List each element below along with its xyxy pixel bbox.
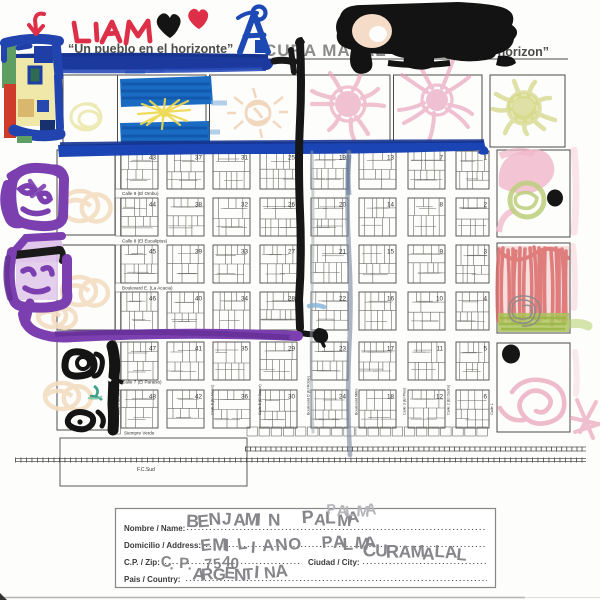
svg-text:L: L bbox=[342, 534, 354, 554]
svg-text:32: 32 bbox=[241, 202, 249, 209]
svg-text:37: 37 bbox=[195, 155, 203, 162]
svg-text:Calle 1: Calle 1 bbox=[490, 403, 494, 415]
svg-text:35: 35 bbox=[241, 346, 249, 353]
svg-text:29: 29 bbox=[288, 346, 296, 353]
svg-text:45: 45 bbox=[149, 249, 157, 256]
svg-text:21: 21 bbox=[339, 249, 347, 256]
svg-text:A: A bbox=[262, 536, 275, 555]
svg-text:4: 4 bbox=[483, 296, 487, 303]
svg-text:44: 44 bbox=[149, 202, 157, 209]
svg-text:C.P. / Zip:: C.P. / Zip: bbox=[124, 558, 160, 567]
svg-text:Calle 5 (El Sauce): Calle 5 (El Sauce) bbox=[258, 384, 262, 415]
svg-text:41: 41 bbox=[195, 346, 203, 353]
svg-text:11: 11 bbox=[436, 346, 443, 353]
svg-text:I: I bbox=[255, 509, 261, 529]
svg-text:P: P bbox=[326, 500, 337, 517]
svg-text:O: O bbox=[288, 535, 301, 554]
svg-text:30: 30 bbox=[288, 394, 296, 401]
svg-text:24: 24 bbox=[339, 394, 347, 401]
svg-text:Calle 2 (El Cedro): Calle 2 (El Cedro) bbox=[447, 384, 451, 415]
svg-text:34: 34 bbox=[241, 296, 249, 303]
svg-text:Domicilio / Address:: Domicilio / Address: bbox=[124, 541, 201, 550]
svg-text:8: 8 bbox=[439, 202, 443, 209]
svg-text:L: L bbox=[345, 504, 355, 521]
svg-text:26: 26 bbox=[288, 202, 296, 209]
svg-text:16: 16 bbox=[387, 296, 395, 303]
svg-text:14: 14 bbox=[387, 202, 395, 209]
svg-text:12: 12 bbox=[436, 394, 444, 401]
svg-text:P: P bbox=[301, 507, 314, 528]
svg-text:T: T bbox=[243, 565, 254, 584]
svg-text:31: 31 bbox=[241, 155, 249, 162]
svg-text:25: 25 bbox=[288, 155, 296, 162]
svg-text:Boulevard D (El Roble): Boulevard D (El Roble) bbox=[307, 375, 311, 415]
svg-text:R: R bbox=[386, 541, 400, 562]
svg-text:E: E bbox=[200, 536, 213, 555]
svg-text:39: 39 bbox=[195, 249, 203, 256]
svg-text:48: 48 bbox=[149, 394, 157, 401]
svg-text:9: 9 bbox=[439, 249, 443, 256]
svg-text:Calle 6 (El Alamo): Calle 6 (El Alamo) bbox=[211, 384, 215, 415]
svg-text:36: 36 bbox=[241, 394, 249, 401]
svg-text:A: A bbox=[365, 501, 376, 518]
svg-text:40: 40 bbox=[195, 296, 203, 303]
svg-text:A: A bbox=[274, 560, 289, 581]
svg-text:Pais / Country:: Pais / Country: bbox=[124, 575, 180, 584]
svg-text:N: N bbox=[268, 509, 281, 529]
svg-text:.: . bbox=[169, 557, 174, 573]
svg-text:3: 3 bbox=[483, 249, 487, 256]
svg-text:23: 23 bbox=[339, 346, 347, 353]
svg-text:N: N bbox=[274, 534, 288, 555]
svg-text:10: 10 bbox=[436, 296, 444, 303]
svg-text:J: J bbox=[222, 509, 233, 529]
svg-text:2: 2 bbox=[483, 202, 487, 209]
svg-text:47: 47 bbox=[149, 346, 157, 353]
svg-text:18: 18 bbox=[387, 394, 395, 401]
svg-text:Boulevard Mitre: Boulevard Mitre bbox=[355, 388, 359, 415]
svg-text:Boulevard E. (La Acacia): Boulevard E. (La Acacia) bbox=[122, 286, 173, 291]
svg-text:.: . bbox=[187, 558, 192, 574]
svg-text:Calle 3 (El Pino): Calle 3 (El Pino) bbox=[403, 387, 407, 415]
svg-text:13: 13 bbox=[387, 155, 395, 162]
svg-text:I: I bbox=[224, 535, 229, 555]
svg-text:6: 6 bbox=[483, 394, 487, 401]
svg-text:33: 33 bbox=[241, 249, 249, 256]
svg-text:5: 5 bbox=[483, 346, 487, 353]
svg-text:Nombre / Name:: Nombre / Name: bbox=[124, 524, 185, 533]
svg-text:43: 43 bbox=[149, 155, 157, 162]
svg-text:38: 38 bbox=[195, 202, 203, 209]
svg-text:22: 22 bbox=[339, 296, 347, 303]
svg-text:Calle 9 (El Ombu): Calle 9 (El Ombu) bbox=[122, 191, 159, 196]
svg-text:N: N bbox=[208, 508, 222, 529]
svg-text:28: 28 bbox=[288, 296, 296, 303]
svg-text:1: 1 bbox=[483, 155, 487, 162]
svg-text:Ciudad / City:: Ciudad / City: bbox=[308, 558, 360, 567]
svg-text:7: 7 bbox=[439, 155, 443, 162]
svg-text:19: 19 bbox=[339, 155, 347, 162]
svg-text:P: P bbox=[321, 533, 333, 552]
svg-text:F.C.Sud: F.C.Sud bbox=[137, 467, 155, 473]
svg-text:27: 27 bbox=[288, 249, 296, 256]
svg-text:17: 17 bbox=[387, 346, 395, 353]
svg-text:L: L bbox=[456, 545, 468, 565]
svg-text:42: 42 bbox=[195, 394, 203, 401]
svg-text:Siempre Verde: Siempre Verde bbox=[124, 431, 155, 436]
svg-text:Calle 8 (El Eucaliptus): Calle 8 (El Eucaliptus) bbox=[122, 239, 168, 244]
svg-text:Calle 7 (El Paraiso): Calle 7 (El Paraiso) bbox=[122, 380, 162, 385]
svg-text:15: 15 bbox=[387, 249, 395, 256]
svg-text:46: 46 bbox=[149, 296, 157, 303]
